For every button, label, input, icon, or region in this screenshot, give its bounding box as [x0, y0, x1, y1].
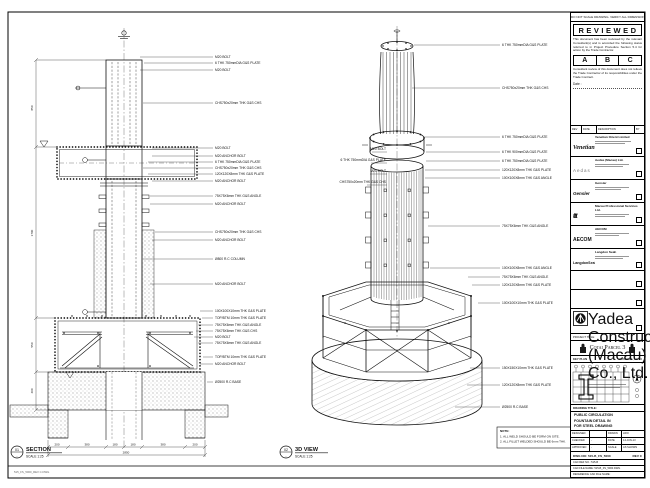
drawing-sheet: 515_FS_5000_REV C.DWG — [0, 0, 650, 488]
contractor-logo — [573, 311, 588, 326]
aecom-logo: AECOM — [573, 237, 592, 243]
svg-text:Ø800 R.C COLUMN: Ø800 R.C COLUMN — [215, 257, 245, 261]
by-col: BY — [635, 126, 644, 133]
svg-text:100X100X8mm THK G&S ANGLE: 100X100X8mm THK G&S ANGLE — [502, 266, 553, 270]
field-label: DATE — [607, 438, 622, 444]
microtext — [595, 258, 623, 259]
svg-text:CHS750x20mm THK G&S CHS: CHS750x20mm THK G&S CHS — [215, 166, 262, 170]
drawing-title: PUBLIC CIRCULATION FOUNTAIN DETAIL IN FO… — [571, 412, 644, 431]
field-value: AS SHOWN — [622, 445, 644, 452]
stamp-paragraph-2: Consultant review of this document does … — [573, 68, 642, 79]
svg-text:120X120X8mm THK G&S PLATE: 120X120X8mm THK G&S PLATE — [502, 168, 552, 172]
svg-text:75X75X6mm THK G&S ANGLE: 75X75X6mm THK G&S ANGLE — [215, 341, 262, 345]
revision-header: REV DATE DESCRIPTION BY — [571, 126, 644, 134]
company-name: Aedas (Macau) Ltd. — [595, 159, 629, 163]
svg-text:120X120X8mm THK G&S PLATE: 120X120X8mm THK G&S PLATE — [502, 383, 552, 387]
status-grade-row: A B C — [573, 55, 642, 66]
north-arrow-icon — [633, 375, 641, 398]
status-checkbox[interactable] — [636, 240, 642, 246]
field-value: LWO — [622, 431, 644, 437]
footer-plot-text: 515_FS_5000_REV C.DWG — [14, 470, 49, 474]
date-col: DATE — [582, 126, 597, 133]
svg-text:M20 ANCHOR BOLT: M20 ANCHOR BOLT — [215, 154, 246, 158]
microtext — [595, 216, 625, 217]
microtext — [595, 189, 621, 190]
note-block: NOTE: 1. ALL WELD SHOULD BE FORM ON SITE… — [497, 427, 573, 448]
svg-text:M20 BOLT: M20 BOLT — [215, 146, 231, 150]
svg-text:6 THK 900mmDIA G&S PLATE: 6 THK 900mmDIA G&S PLATE — [502, 150, 548, 154]
svg-text:M20 BOLT: M20 BOLT — [215, 335, 231, 339]
3d-view: 6 THK 750mmDIA G&S PLATE CHS750x20mm THK… — [280, 26, 573, 459]
no-scale-note: DO NOT SCALE DRAWING. VERIFY ALL DIMENSI… — [571, 13, 644, 22]
svg-text:75X75X6mm THK G&S ANGLE: 75X75X6mm THK G&S ANGLE — [215, 323, 262, 327]
microtext — [595, 235, 619, 236]
svg-text:M20 BOLT: M20 BOLT — [370, 147, 386, 151]
project-title-label: PROJECT TITLE — [571, 334, 644, 341]
svg-text:75X75X6mm THK G&S CHS: 75X75X6mm THK G&S CHS — [215, 329, 258, 333]
company-name: Macau Professional Services Ltd. — [595, 205, 642, 212]
svg-text:6 THK 750mmDIA G&S PLATE: 6 THK 750mmDIA G&S PLATE — [215, 160, 261, 164]
microtext — [595, 141, 631, 142]
title-block: DO NOT SCALE DRAWING. VERIFY ALL DIMENSI… — [570, 12, 645, 478]
key-plan-ref: PARCEL 1, LOT 3 — [620, 356, 643, 362]
dwg-number-row: DWG NO: 515-B_FS_5000 REV C — [571, 452, 644, 460]
dwg-number: DWG NO: 515-B_FS_5000 — [573, 452, 611, 459]
gensler-logo: Gensler — [573, 191, 590, 196]
dim-label: 550 — [30, 342, 34, 347]
status-checkbox[interactable] — [636, 262, 642, 268]
company-row-aecom: AECOM AECOM — [571, 226, 644, 249]
svg-text:NOTE:: NOTE: — [500, 429, 509, 433]
svg-text:CHS750x20mm THK G&S CHS: CHS750x20mm THK G&S CHS — [215, 230, 262, 234]
project-name-row: Cotai Parcel 3 — [571, 341, 644, 356]
company-row-macau-professional: ttt Macau Professional Services Ltd. — [571, 203, 644, 226]
drawing-title-line: FOR STEEL DRAWING — [574, 424, 644, 430]
svg-text:75X75X6mm THK G&S ANGLE: 75X75X6mm THK G&S ANGLE — [502, 275, 549, 279]
grade-a-cell[interactable]: A — [574, 56, 597, 65]
svg-text:CHS750x20mm THK G&S CHS: CHS750x20mm THK G&S CHS — [215, 101, 262, 105]
svg-text:6 THK 750mmDIA G&S PLATE: 6 THK 750mmDIA G&S PLATE — [502, 159, 548, 163]
project-emblem-icon — [579, 343, 587, 354]
microtext — [595, 187, 629, 188]
svg-text:TOP/BTM 10mm THK G&S PLATE: TOP/BTM 10mm THK G&S PLATE — [215, 355, 267, 359]
column-shaft-top — [75, 60, 142, 146]
dim-total-label: 2850 — [123, 451, 130, 455]
svg-text:2. ALL FILLET WELDED SHOULD BE: 2. ALL FILLET WELDED SHOULD BE 6mm THK. — [500, 440, 566, 444]
status-checkbox[interactable] — [636, 300, 642, 306]
svg-text:CHS750x20mm THK G&S CHS: CHS750x20mm THK G&S CHS — [340, 180, 387, 184]
dim-label: 380 — [84, 443, 89, 447]
company-row-aedas: Aedas Aedas (Macau) Ltd. — [571, 157, 644, 180]
svg-text:CHS750x20mm THK G&S CHS: CHS750x20mm THK G&S CHS — [502, 86, 549, 90]
svg-text:-: - — [16, 454, 18, 458]
svg-text:M20 ANCHOR BOLT: M20 ANCHOR BOLT — [215, 202, 246, 206]
dim-label: 380 — [160, 443, 165, 447]
company-name: AECOM — [595, 228, 629, 232]
3d-view-title: 02 - 3D VIEW SCALE 1:25 — [280, 446, 328, 459]
signoff-grid: DESIGNED DRAWN LWO CHECKED - DATE 14-JUN… — [571, 431, 644, 452]
reviewed-stamp: REVIEWED This document has been reviewed… — [571, 22, 644, 126]
svg-text:120X120X8mm THK G&S PLATE: 120X120X8mm THK G&S PLATE — [502, 283, 552, 287]
key-plan — [571, 363, 644, 405]
grade-c-cell[interactable]: C — [619, 56, 641, 65]
grade-b-cell[interactable]: B — [597, 56, 620, 65]
drawing-title-label: DRAWING TITLE: — [571, 405, 644, 412]
company-row-gensler: Gensler Gensler — [571, 180, 644, 203]
section-callout-labels: M20 BOLT 6 THK 750mmDIA G&S PLATE M20 BO… — [215, 55, 267, 384]
contractor-row: Yadea Construction (Macau) Co., Ltd. — [571, 309, 644, 334]
svg-text:M20 ANCHOR BOLT: M20 ANCHOR BOLT — [215, 179, 246, 183]
svg-text:01: 01 — [15, 448, 19, 452]
dim-label: 1700 — [30, 229, 34, 236]
field-value — [590, 431, 607, 437]
svg-text:M20 ANCHOR BOLT: M20 ANCHOR BOLT — [215, 238, 246, 242]
field-value: 14-JUN-13 — [622, 438, 644, 444]
company-row-langdon-seah: LangdonSeah Langdon Seah — [571, 249, 644, 271]
svg-text:M20 BOLT: M20 BOLT — [370, 169, 386, 173]
stamp-paragraph-1: This document has been reviewed by the r… — [573, 38, 642, 53]
field-label: DESIGNED — [571, 431, 590, 437]
field-label: APPROVED — [571, 445, 590, 452]
microtext — [595, 214, 629, 215]
rev-badge: REV C — [633, 452, 642, 459]
svg-text:SECTION: SECTION — [26, 447, 51, 453]
key-plan-header: KEY PLAN PARCEL 1, LOT 3 — [571, 356, 644, 363]
status-checkbox[interactable] — [636, 148, 642, 154]
status-checkbox[interactable] — [636, 171, 642, 177]
field-value: - — [590, 438, 607, 444]
svg-text:M20 ANCHOR BOLT: M20 ANCHOR BOLT — [215, 282, 246, 286]
svg-text:150X150X10mm THK G&S PLATE: 150X150X10mm THK G&S PLATE — [502, 366, 554, 370]
status-checkbox[interactable] — [636, 281, 642, 287]
microtext — [595, 256, 629, 257]
svg-text:100X100X10mm THK G&S PLATE: 100X100X10mm THK G&S PLATE — [215, 309, 267, 313]
svg-text:100X100X8mm THK G&S ANGLE: 100X100X8mm THK G&S ANGLE — [502, 176, 553, 180]
field-label: CHECKED — [571, 438, 590, 444]
reviewed-stamp-title: REVIEWED — [573, 24, 642, 36]
company-row-empty-1 — [571, 271, 644, 290]
status-checkbox[interactable] — [636, 217, 642, 223]
company-row-empty-2 — [571, 290, 644, 309]
field-value: - — [590, 445, 607, 452]
svg-text:-: - — [285, 454, 287, 458]
dim-label: 200 — [192, 443, 197, 447]
svg-text:6 THK 750mmDIA G&S PLATE: 6 THK 750mmDIA G&S PLATE — [502, 135, 548, 139]
dim-label: 400 — [30, 388, 34, 393]
concrete-encase-right — [142, 230, 154, 318]
dim-label: 180 — [112, 443, 117, 447]
svg-text:3D VIEW: 3D VIEW — [295, 447, 319, 453]
drawing-canvas: 515_FS_5000_REV C.DWG — [0, 0, 650, 488]
description-col: DESCRIPTION — [597, 126, 635, 133]
svg-text:M20 BOLT: M20 BOLT — [215, 68, 231, 72]
reference-row: REFERENCE CAD FILE NAME: — [571, 472, 644, 478]
svg-text:M20 BOLT: M20 BOLT — [215, 55, 231, 59]
venetian-logo: Venetian — [573, 145, 595, 151]
ttt-logo: ttt — [573, 211, 577, 220]
dim-label: 850 — [30, 105, 34, 110]
svg-text:M20 ANCHOR BOLT: M20 ANCHOR BOLT — [215, 362, 246, 366]
rev-col: REV — [571, 126, 582, 133]
svg-text:6 THK 750mmDIA G&S PLATE: 6 THK 750mmDIA G&S PLATE — [215, 61, 261, 65]
dim-label: 180 — [130, 443, 135, 447]
svg-text:6 THK 750mmDIA G&S PLATE: 6 THK 750mmDIA G&S PLATE — [502, 43, 548, 47]
pipe-bundle — [379, 52, 414, 134]
concrete-encase-left — [94, 230, 106, 318]
company-name: Gensler — [595, 182, 629, 186]
svg-text:120X120X8mm THK G&S PLATE: 120X120X8mm THK G&S PLATE — [215, 172, 265, 176]
svg-text:75X75X6mm THK G&S ANGLE: 75X75X6mm THK G&S ANGLE — [502, 224, 549, 228]
microtext — [595, 233, 629, 234]
project-emblem-icon — [628, 343, 636, 354]
base-frame-box — [55, 315, 200, 378]
stamp-date-field[interactable]: Date : — [573, 82, 642, 89]
svg-text:100X100X10mm THK G&S PLATE: 100X100X10mm THK G&S PLATE — [502, 301, 554, 305]
company-row-venetian: Venetian Venetian Orient Limited — [571, 134, 644, 157]
svg-text:SCALE 1:25: SCALE 1:25 — [295, 455, 313, 459]
status-checkbox[interactable] — [636, 325, 642, 331]
field-label: DRAWN — [607, 431, 622, 437]
company-name: Langdon Seah — [595, 251, 629, 255]
section-view: 850 1700 550 400 200 380 180 180 380 200… — [10, 28, 267, 459]
section-leader-lines — [140, 57, 213, 382]
microtext — [595, 164, 629, 165]
microtext — [595, 166, 623, 167]
company-name: Venetian Orient Limited — [595, 136, 631, 140]
svg-text:Ø2500 R.C BASE: Ø2500 R.C BASE — [502, 405, 529, 409]
key-plan-drawing — [571, 363, 644, 405]
svg-text:SCALE 1:25: SCALE 1:25 — [26, 455, 44, 459]
plinth — [312, 339, 482, 425]
aedas-logo: Aedas — [573, 168, 591, 173]
svg-text:6 THK 750mmDIA G&S PLATE: 6 THK 750mmDIA G&S PLATE — [340, 158, 386, 162]
key-plan-label: KEY PLAN — [573, 356, 587, 362]
svg-text:1. ALL WELD SHOULD BE FORM ON: 1. ALL WELD SHOULD BE FORM ON SITE. — [500, 435, 560, 439]
svg-text:Ø2500 R.C BASE: Ø2500 R.C BASE — [215, 380, 242, 384]
status-checkbox[interactable] — [636, 194, 642, 200]
footing — [10, 372, 228, 440]
svg-text:TOP/BTM 10mm THK G&S PLATE: TOP/BTM 10mm THK G&S PLATE — [215, 316, 267, 320]
svg-text:02: 02 — [284, 448, 288, 452]
microtext — [595, 143, 625, 144]
dim-label: 200 — [54, 443, 59, 447]
project-name: Cotai Parcel 3 — [590, 345, 626, 351]
langdon-seah-logo: LangdonSeah — [573, 261, 595, 265]
section-view-title: 01 - SECTION SCALE 1:25 — [11, 446, 62, 459]
svg-text:75X75X6mm THK G&S ANGLE: 75X75X6mm THK G&S ANGLE — [215, 194, 262, 198]
field-label: SCALE — [607, 445, 622, 452]
